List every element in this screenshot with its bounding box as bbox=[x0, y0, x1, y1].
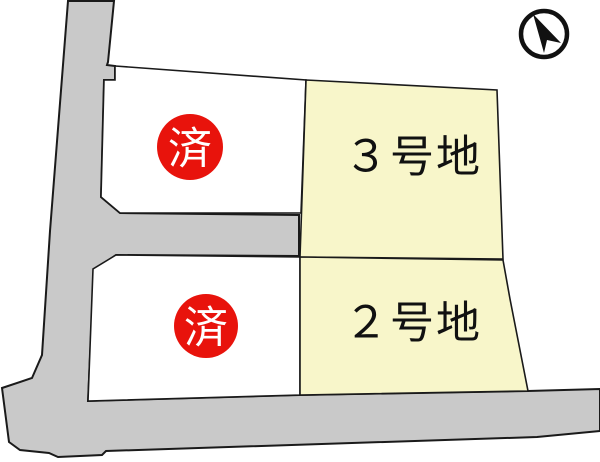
lot-3-label: ３号地 bbox=[344, 132, 482, 183]
sold-badge-text: 済 bbox=[184, 303, 228, 354]
north-arrow-icon bbox=[521, 11, 567, 57]
sold-badge-upper: 済 bbox=[157, 114, 223, 180]
sold-badge-text: 済 bbox=[168, 124, 212, 175]
sold-badge-lower: 済 bbox=[174, 294, 238, 358]
site-plan-map: 済 済 ３号地 ２号地 bbox=[0, 0, 600, 462]
lot-2-label: ２号地 bbox=[344, 298, 482, 349]
site-plan: 済 済 ３号地 ２号地 bbox=[0, 0, 600, 462]
